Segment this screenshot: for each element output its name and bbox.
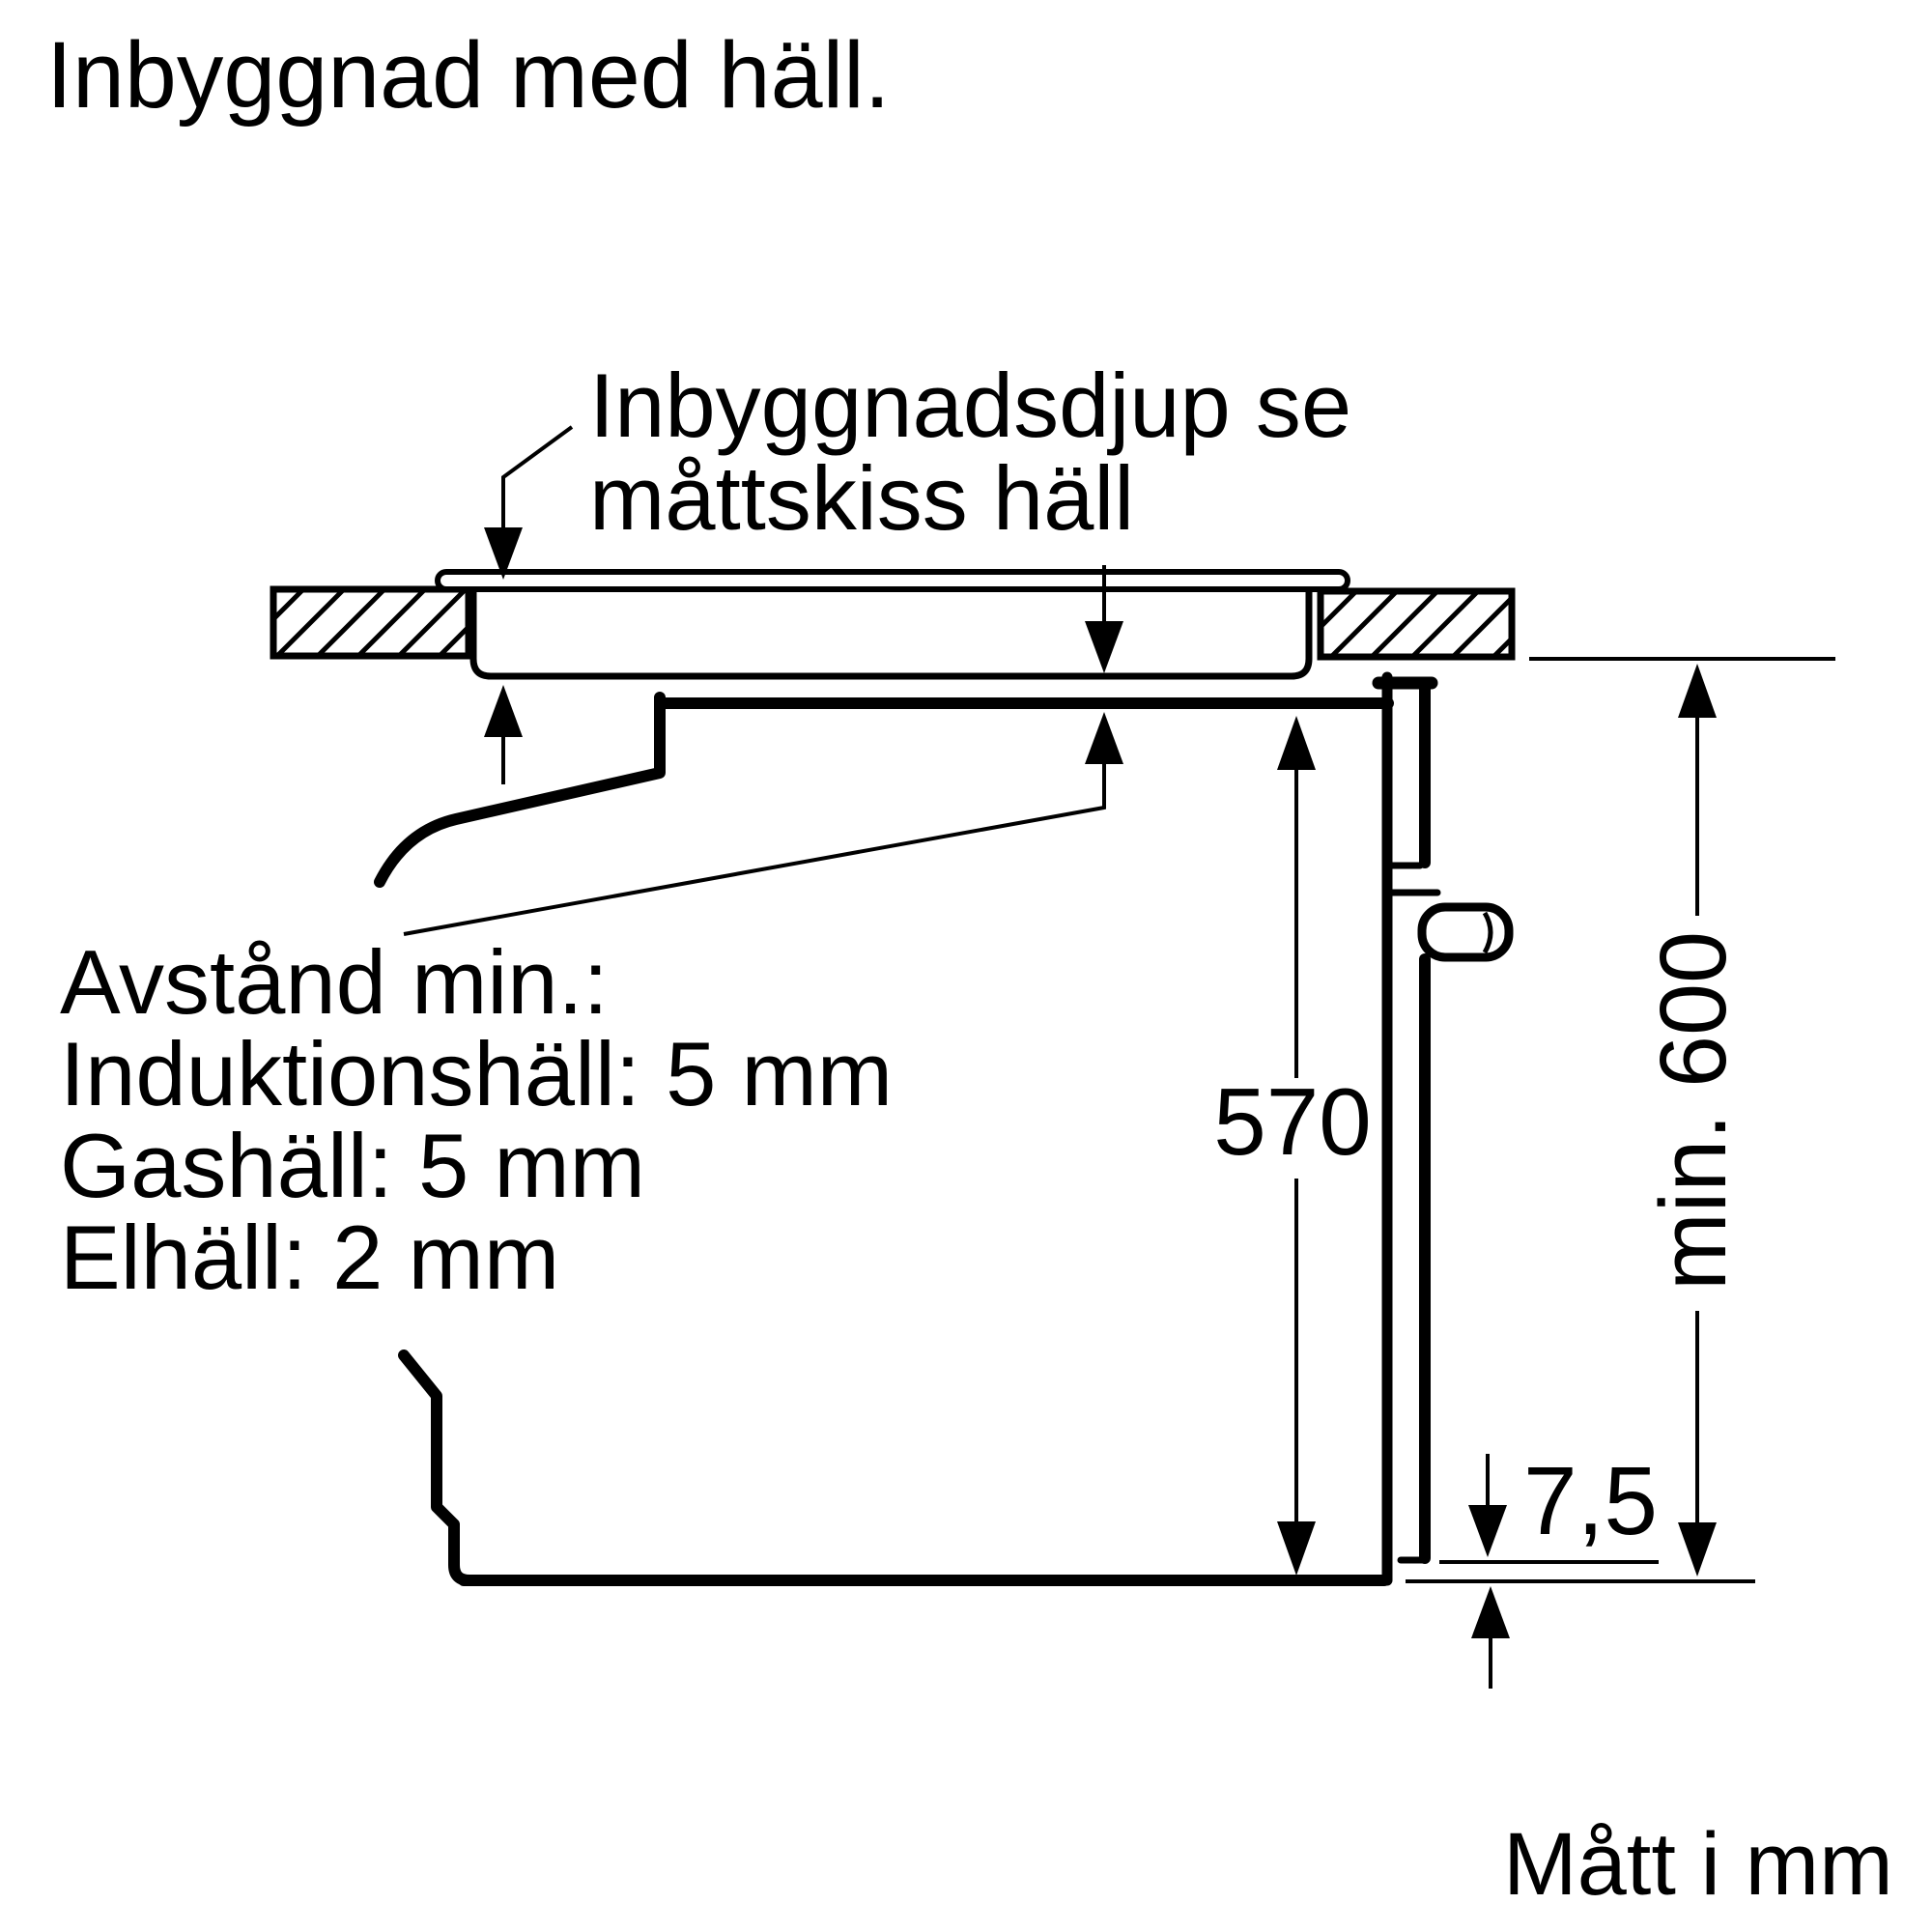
worktop-right-section: [1321, 591, 1512, 657]
arrow-up-icon: [1277, 716, 1316, 770]
oven-top-left-duct: [380, 697, 660, 882]
arrow-up-icon: [484, 685, 523, 737]
arrow-down-icon: [1678, 1522, 1717, 1577]
arrow-up-icon: [1471, 1586, 1510, 1638]
note-line-electric: Elhäll: 2 mm: [60, 1211, 893, 1303]
arrow-up-icon: [1678, 664, 1717, 718]
installation-diagram-page: Inbyggnad med häll. Inbyggnadsdjup se må…: [0, 0, 1932, 1932]
hob-body: [473, 583, 1309, 676]
hob-depth-callout: Inbyggnadsdjup se måttskiss häll: [589, 359, 1351, 545]
note-line-gas: Gashäll: 5 mm: [60, 1120, 893, 1211]
hob-top-plate: [438, 572, 1348, 589]
units-note: Mått i mm: [1503, 1818, 1893, 1911]
dimension-75-line: [1468, 1454, 1510, 1689]
min-distance-note: Avstånd min.: Induktionshäll: 5 mm Gashä…: [60, 936, 893, 1303]
note-line-induction: Induktionshäll: 5 mm: [60, 1028, 893, 1120]
oven-knob: [1422, 907, 1509, 957]
extension-lines: [1406, 659, 1835, 1581]
callout-line-1: Inbyggnadsdjup se: [589, 359, 1351, 452]
arrow-up-icon: [1085, 712, 1123, 764]
arrow-down-icon: [1277, 1521, 1316, 1576]
hob-depth-leader: [484, 427, 572, 580]
arrow-down-icon: [1468, 1505, 1507, 1557]
dimension-label-7-5: 7,5: [1523, 1452, 1658, 1550]
oven-bottom-left-profile: [404, 1355, 469, 1580]
dimension-label-570: 570: [1213, 1072, 1372, 1171]
worktop-left-section: [273, 589, 469, 656]
dimension-label-min-600: min. 600: [1645, 931, 1742, 1291]
page-title: Inbyggnad med häll.: [46, 27, 891, 124]
note-line-heading: Avstånd min.:: [60, 936, 893, 1028]
callout-line-2: måttskiss häll: [589, 452, 1351, 545]
